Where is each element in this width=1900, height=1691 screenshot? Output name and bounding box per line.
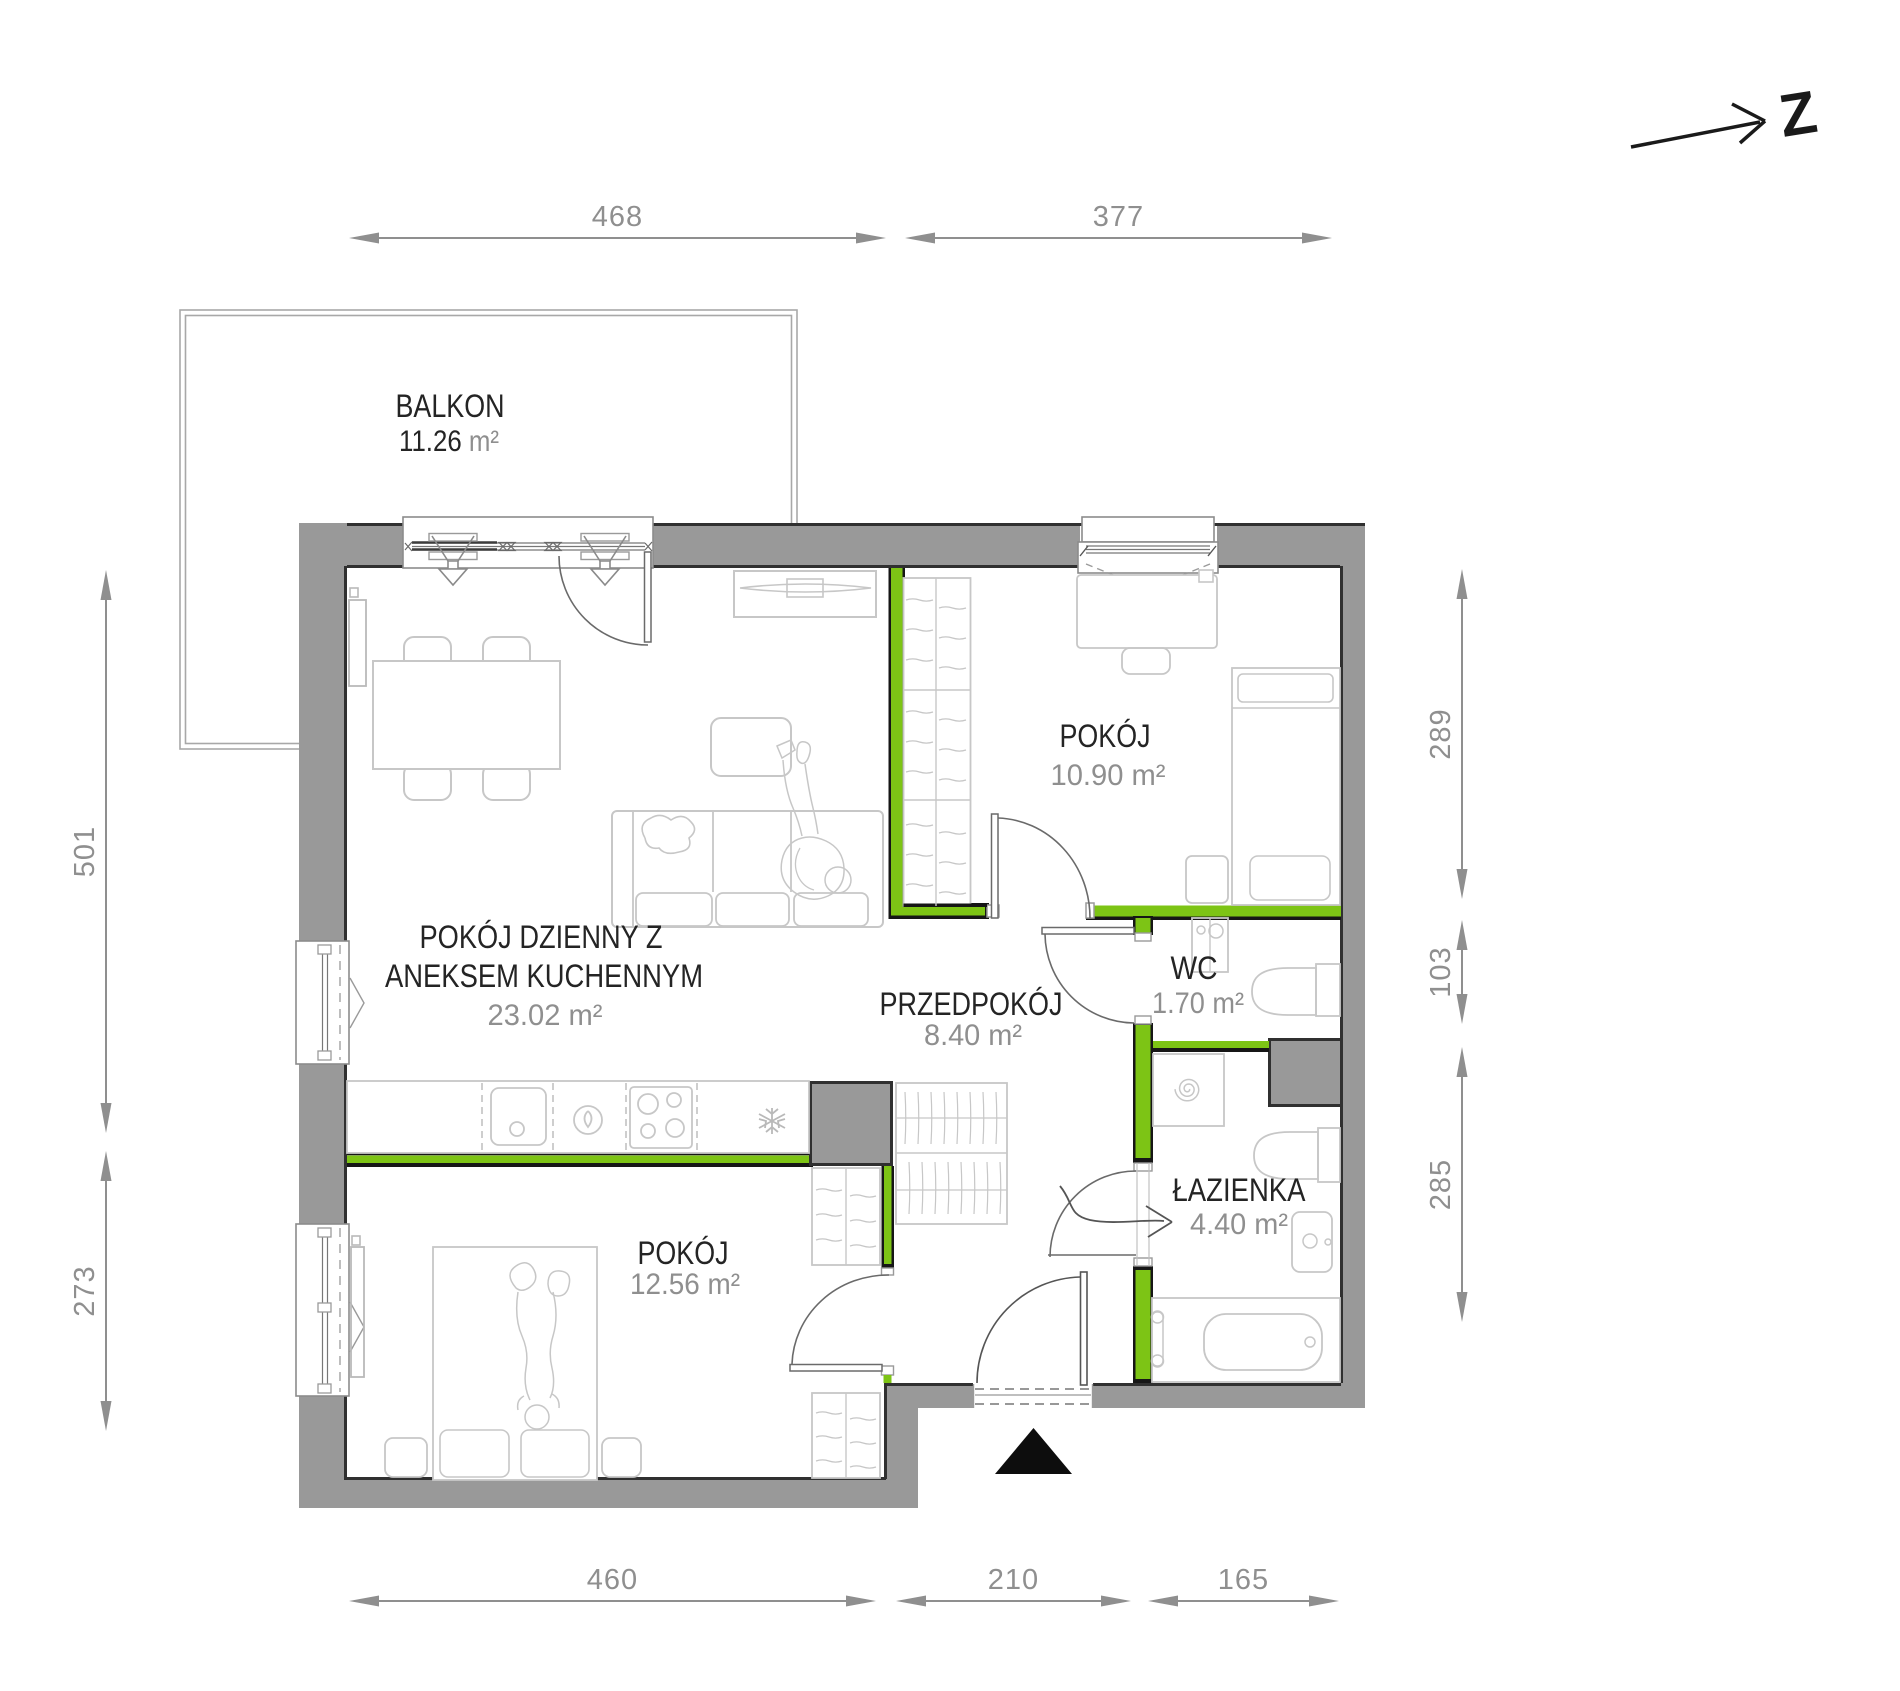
svg-text:468: 468 — [592, 201, 643, 233]
svg-text:273: 273 — [69, 1265, 101, 1316]
svg-text:12.56 m²: 12.56 m² — [630, 1268, 740, 1301]
svg-text:ANEKSEM KUCHENNYM: ANEKSEM KUCHENNYM — [385, 958, 703, 994]
svg-text:8.40 m²: 8.40 m² — [924, 1019, 1022, 1052]
svg-text:210: 210 — [988, 1564, 1039, 1596]
svg-text:460: 460 — [587, 1564, 638, 1596]
svg-text:377: 377 — [1093, 201, 1144, 233]
svg-text:1.70 m²: 1.70 m² — [1152, 987, 1244, 1020]
svg-text:WC: WC — [1171, 950, 1218, 986]
svg-text:ŁAZIENKA: ŁAZIENKA — [1173, 1172, 1307, 1208]
svg-text:23.02 m²: 23.02 m² — [488, 999, 603, 1032]
svg-text:103: 103 — [1425, 946, 1457, 997]
svg-text:BALKON: BALKON — [396, 388, 505, 424]
svg-text:PRZEDPOKÓJ: PRZEDPOKÓJ — [880, 986, 1063, 1022]
svg-text:501: 501 — [69, 826, 101, 877]
svg-text:POKÓJ DZIENNY Z: POKÓJ DZIENNY Z — [420, 919, 663, 955]
svg-text:165: 165 — [1218, 1564, 1269, 1596]
svg-text:POKÓJ: POKÓJ — [638, 1235, 729, 1271]
svg-text:11.26 m²: 11.26 m² — [399, 425, 499, 458]
svg-text:285: 285 — [1425, 1159, 1457, 1210]
svg-text:POKÓJ: POKÓJ — [1060, 718, 1151, 754]
svg-text:289: 289 — [1425, 708, 1457, 759]
svg-text:10.90 m²: 10.90 m² — [1051, 759, 1166, 792]
svg-text:4.40 m²: 4.40 m² — [1190, 1208, 1288, 1241]
